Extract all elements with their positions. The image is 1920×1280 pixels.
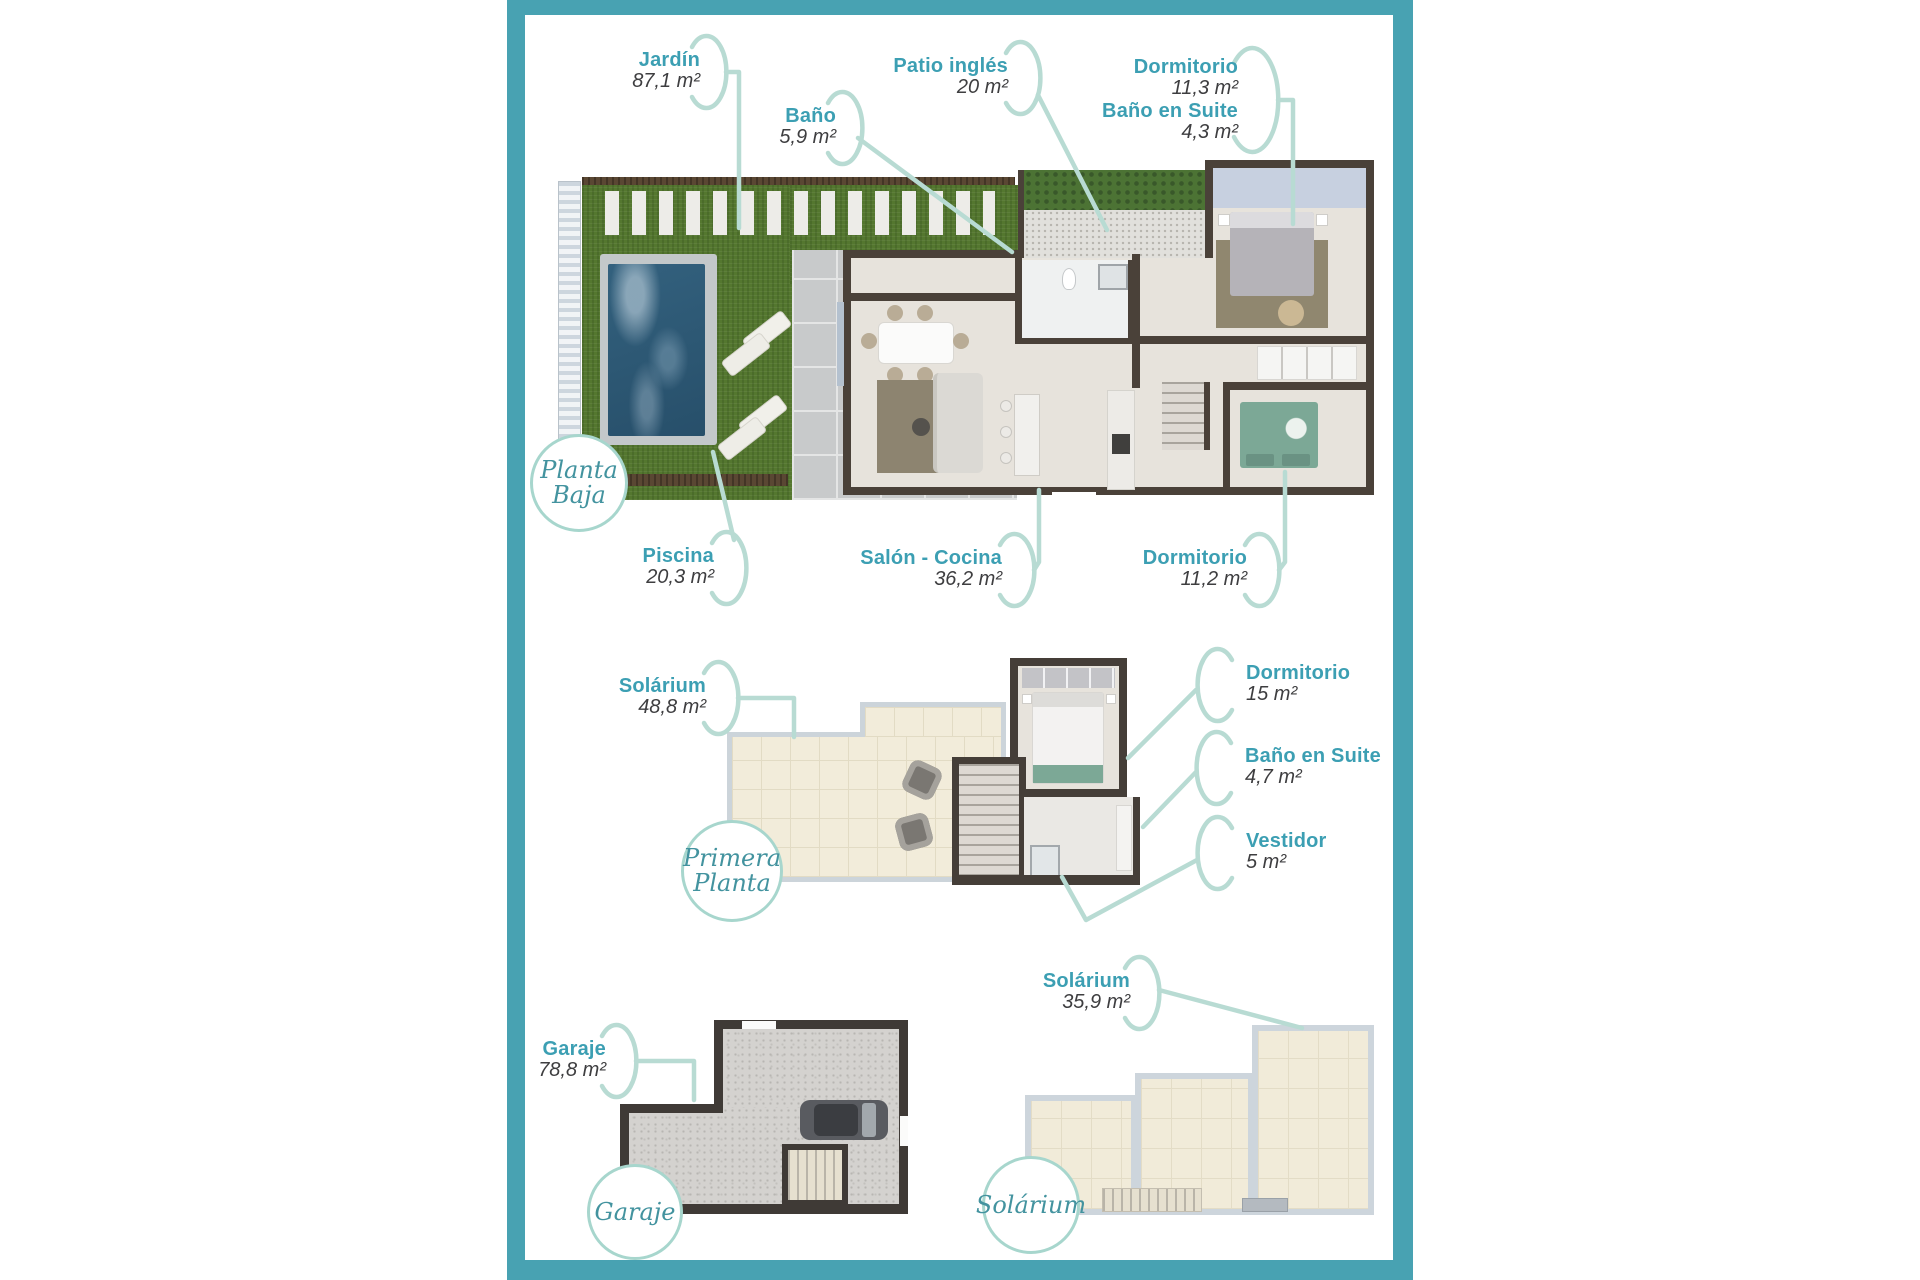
leader-lines-overlay [0,0,1920,1280]
room-area: 48,8 m² [619,697,706,718]
leader-bano-suite-47 [1143,772,1196,827]
label-solarium-359: Solárium 35,9 m² [1043,971,1130,1013]
room-name: Dormitorio [1246,663,1350,684]
label-solarium-488: Solárium 48,8 m² [619,676,706,718]
room-area: 78,8 m² [538,1060,606,1081]
room-area: 5,9 m² [779,127,836,148]
badge-line: Garaje [595,1200,676,1225]
arc-salon-cocina [1000,534,1034,606]
room-area: 15 m² [1246,684,1350,705]
leader-jardin [726,72,739,228]
badge-line: Primera [683,846,781,871]
leader-dormitorio-suite [1278,100,1293,224]
label-patio-ingles: Patio inglés 20 m² [893,56,1008,98]
label-piscina: Piscina 20,3 m² [643,546,714,588]
room-area: 35,9 m² [1043,992,1130,1013]
room-name: Baño en Suite [1102,101,1238,122]
room-name: Salón - Cocina [860,548,1002,569]
leader-bano [858,138,1012,252]
room-name: Baño en Suite [1245,746,1381,767]
arc-patio-ingles [1006,42,1040,114]
leader-solarium-488 [738,698,794,737]
room-area: 4,3 m² [1102,122,1238,143]
room-name: Vestidor [1246,831,1327,852]
room-name: Dormitorio [1134,57,1238,78]
label-bano: Baño 5,9 m² [779,106,836,148]
label-dormitorio-112: Dormitorio 11,2 m² [1143,548,1247,590]
label-dormitorio-113: Dormitorio 11,3 m² [1134,57,1238,99]
arc-solarium-359 [1125,957,1159,1029]
label-garaje: Garaje 78,8 m² [538,1039,606,1081]
leader-vestidor [1062,860,1197,920]
room-name: Baño [779,106,836,127]
arc-bano-suite-47 [1197,732,1231,804]
leader-garaje [636,1061,694,1100]
room-area: 11,2 m² [1143,569,1247,590]
label-bano-en-suite-43: Baño en Suite 4,3 m² [1102,101,1238,143]
arc-dormitorio-112 [1245,534,1279,606]
room-area: 87,1 m² [632,71,700,92]
room-area: 20 m² [893,77,1008,98]
room-area: 20,3 m² [643,567,714,588]
room-name: Solárium [619,676,706,697]
room-area: 5 m² [1246,852,1327,873]
leader-piscina [713,452,734,540]
arc-garaje [602,1025,636,1097]
room-name: Jardín [632,50,700,71]
arc-dormitorio-suite [1234,48,1278,152]
badge-line: Planta [540,458,618,483]
label-salon-cocina: Salón - Cocina 36,2 m² [860,548,1002,590]
badge-primera-planta: Primera Planta [681,820,783,922]
badge-solarium: Solárium [982,1156,1080,1254]
room-area: 4,7 m² [1245,767,1381,788]
arc-solarium-488 [704,662,738,734]
badge-line: Planta [693,871,771,896]
badge-line: Baja [552,483,606,508]
room-area: 36,2 m² [860,569,1002,590]
arc-piscina [712,532,746,604]
badge-planta-baja: Planta Baja [530,434,628,532]
leader-patio-ingles [1038,95,1107,230]
arc-dormitorio-15 [1198,649,1232,721]
room-name: Solárium [1043,971,1130,992]
badge-garaje: Garaje [587,1164,683,1260]
room-name: Patio inglés [893,56,1008,77]
label-bano-en-suite-47: Baño en Suite 4,7 m² [1245,746,1381,788]
leader-solarium-359 [1159,990,1302,1028]
label-vestidor: Vestidor 5 m² [1246,831,1327,873]
room-name: Piscina [643,546,714,567]
room-name: Garaje [538,1039,606,1060]
leader-dormitorio-15 [1128,690,1196,758]
room-area: 11,3 m² [1134,78,1238,99]
label-dormitorio-15: Dormitorio 15 m² [1246,663,1350,705]
arc-vestidor [1198,817,1232,889]
label-jardin: Jardín 87,1 m² [632,50,700,92]
room-name: Dormitorio [1143,548,1247,569]
badge-line: Solárium [976,1193,1086,1218]
